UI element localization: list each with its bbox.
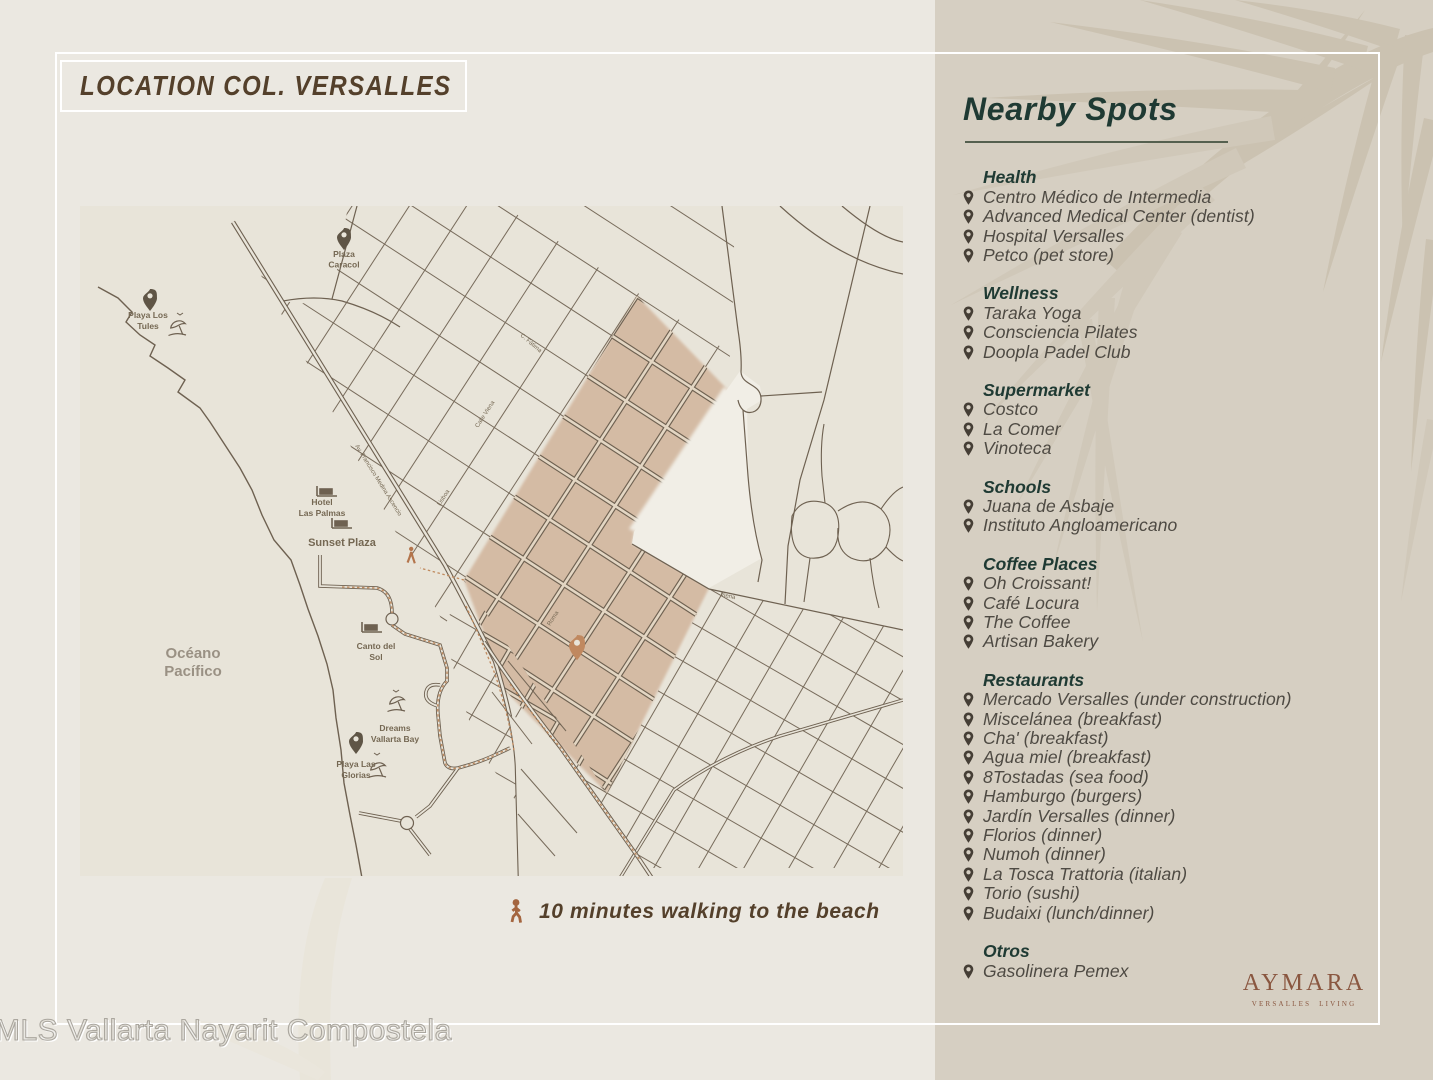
svg-text:Pacífico: Pacífico xyxy=(164,663,222,680)
svg-text:Glorias: Glorias xyxy=(341,770,371,780)
svg-text:Dreams: Dreams xyxy=(379,723,410,733)
svg-text:Plaza: Plaza xyxy=(333,249,355,259)
svg-text:Playa Las: Playa Las xyxy=(336,759,375,769)
svg-text:Las Palmas: Las Palmas xyxy=(299,508,346,518)
svg-text:Vallarta Bay: Vallarta Bay xyxy=(371,734,419,744)
svg-text:Sol: Sol xyxy=(369,652,382,662)
svg-text:Caracol: Caracol xyxy=(328,260,359,270)
svg-text:Sunset Plaza: Sunset Plaza xyxy=(308,537,377,549)
svg-text:Tules: Tules xyxy=(137,321,159,331)
svg-text:Hotel: Hotel xyxy=(311,497,332,507)
svg-text:Océano: Océano xyxy=(165,645,220,662)
svg-text:Canto del: Canto del xyxy=(357,641,396,651)
svg-text:Playa Los: Playa Los xyxy=(128,310,168,320)
